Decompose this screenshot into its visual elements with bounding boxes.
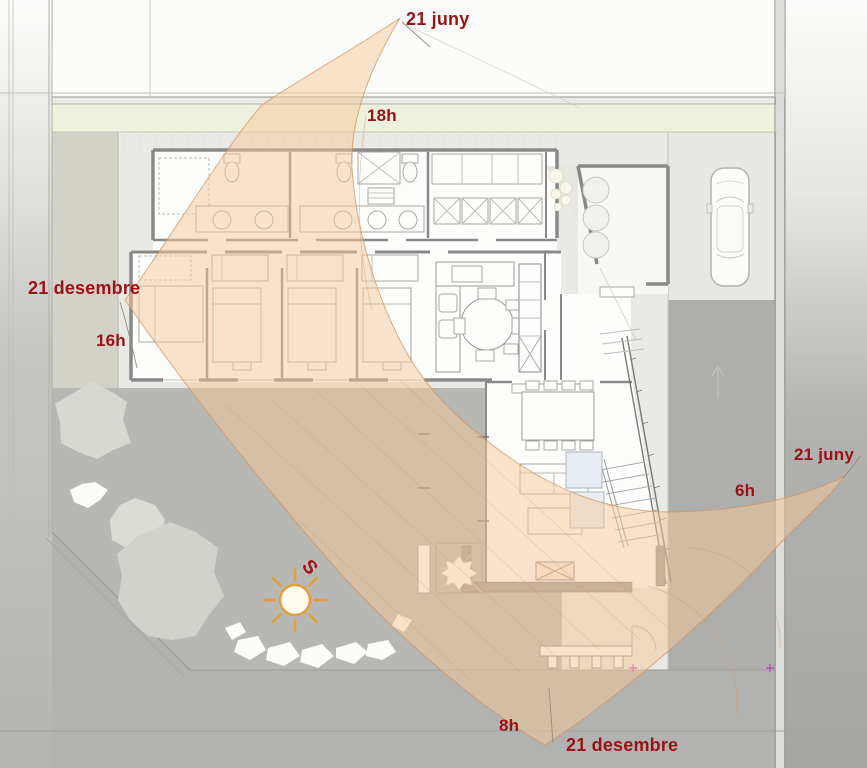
label-june-top: 21 juny [406,10,469,28]
sun-path-site-plan: 21 juny 18h 21 desembre 16h 21 juny 6h 8… [0,0,867,768]
label-hour-8: 8h [499,717,519,734]
sun-icon [264,569,326,631]
label-hour-18: 18h [367,107,397,124]
site-plan-svg [0,0,867,768]
label-december-left: 21 desembre [28,279,140,297]
label-hour-6: 6h [735,482,755,499]
car-top-view-icon [707,168,753,286]
label-december-bottom: 21 desembre [566,736,678,754]
label-hour-16: 16h [96,332,126,349]
label-june-right: 21 juny [794,446,854,463]
